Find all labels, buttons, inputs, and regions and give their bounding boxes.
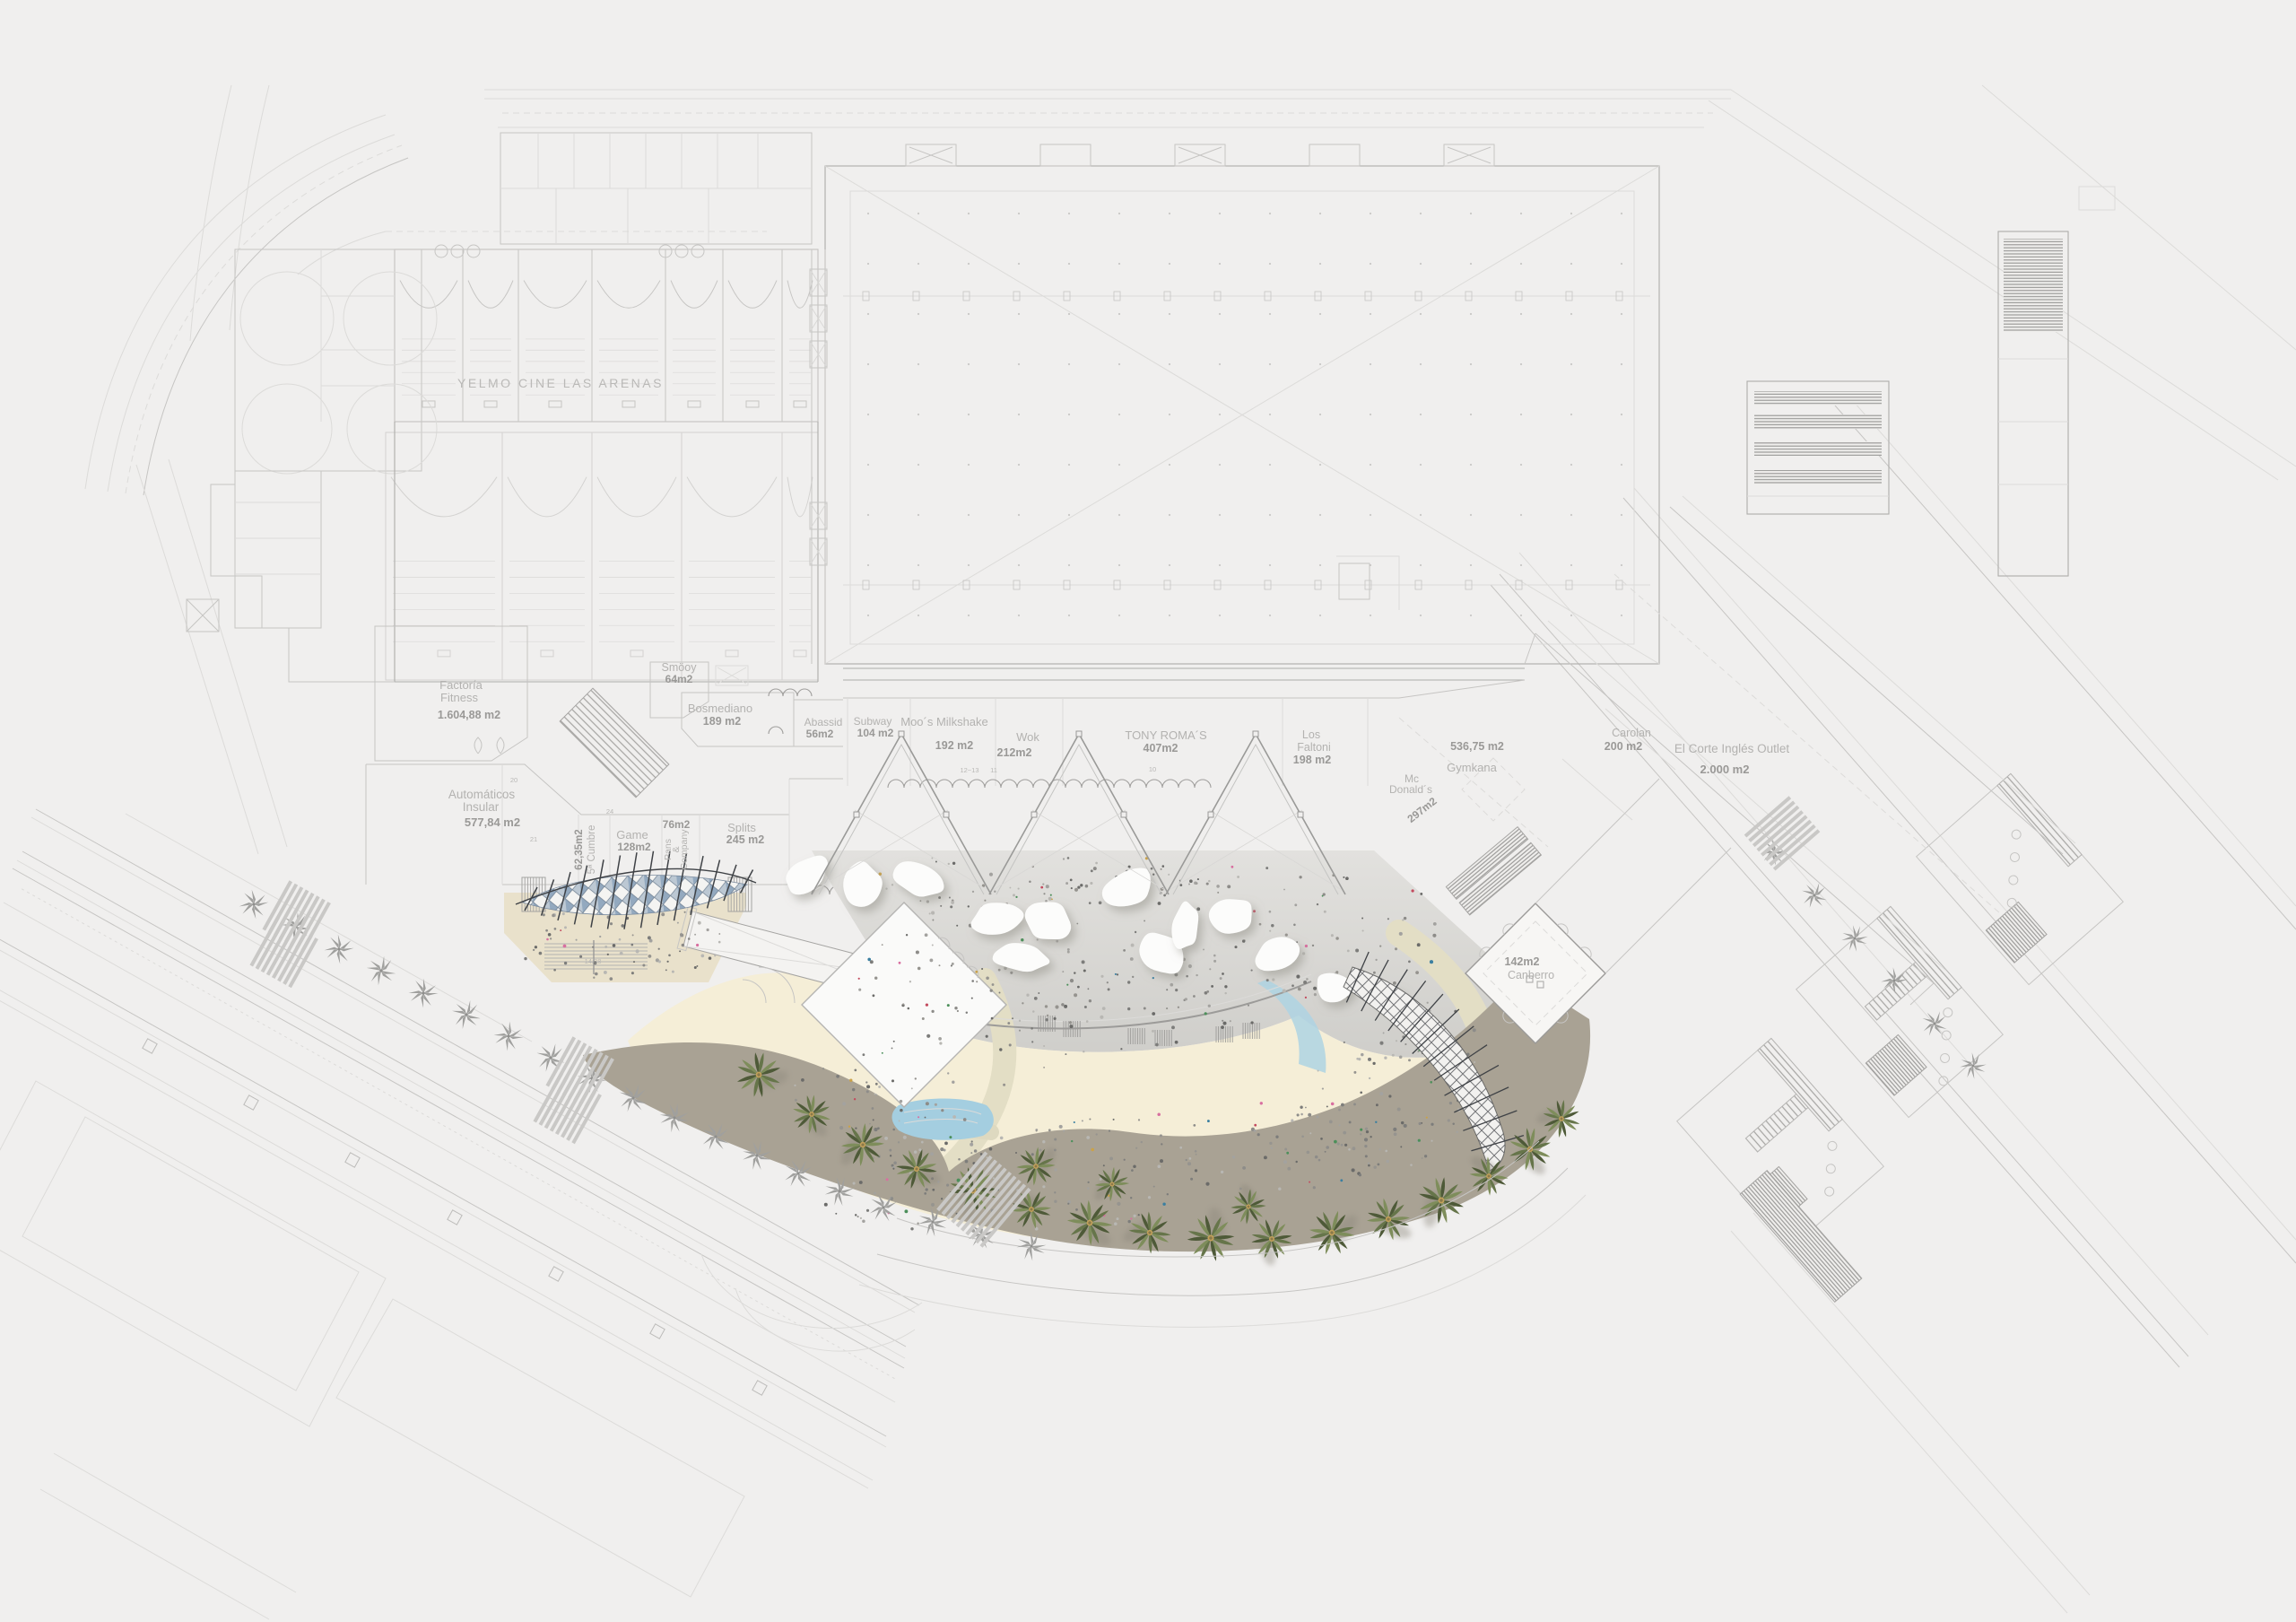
grid-mark: 14/38 xyxy=(585,957,602,965)
plan-label-game-1: Game xyxy=(616,828,648,842)
plan-label-splits-1: Splits xyxy=(727,821,756,834)
grid-mark: 21 xyxy=(530,835,537,843)
plan-label-factoria-1: Factoría xyxy=(439,678,483,692)
plan-label-splits-2: 245 m2 xyxy=(726,833,764,846)
plan-label-mcd-2: Donald´s xyxy=(1389,783,1432,796)
plan-label-bosmediano-1: Bosmediano xyxy=(688,702,752,715)
plan-label-factoria-2: Fitness xyxy=(440,691,478,704)
plan-label-abassid-1: Abassid xyxy=(804,716,843,728)
plan-label-smooy-2: 64m2 xyxy=(665,673,693,685)
plan-label-subway-2: 104 m2 xyxy=(857,727,894,739)
plan-label-eci-1: El Corte Inglés Outlet xyxy=(1674,742,1790,755)
plan-label-moos-2: 192 m2 xyxy=(935,739,973,752)
plan-label-tony-1: TONY ROMA´S xyxy=(1125,728,1207,742)
plan-label-subway-1: Subway xyxy=(854,715,892,728)
plan-label-moos-1: Moo´s Milkshake xyxy=(900,715,988,728)
site-plan-page: YELMO CINE LAS ARENASFactoríaFitness1.60… xyxy=(0,0,2296,1622)
plan-label-cumbre-1: 62,35m2 xyxy=(574,829,585,869)
plan-label-yelmo-cine: YELMO CINE LAS ARENAS xyxy=(457,376,664,390)
plan-label-pans-1: 76m2 xyxy=(663,818,691,831)
paper-background xyxy=(0,0,2296,1622)
grid-mark: 11 xyxy=(990,766,997,774)
plan-label-smooy-1: Smöoy xyxy=(662,661,698,674)
site-plan-canvas: YELMO CINE LAS ARENASFactoríaFitness1.60… xyxy=(0,0,2296,1622)
plan-label-cumbre-2: 5ª Cumbre xyxy=(587,825,597,875)
plan-label-bosmediano-2: 189 m2 xyxy=(703,715,741,728)
plan-label-carolan-1: Carolan xyxy=(1612,727,1651,739)
plan-label-autoinsular-2: Insular xyxy=(463,800,500,814)
plan-label-wok-1: Wok xyxy=(1016,730,1039,744)
grid-mark: 12~13 xyxy=(960,766,978,774)
plan-label-faltoni-2: Faltoni xyxy=(1297,741,1331,754)
plan-label-autoinsular-3: 577,84 m2 xyxy=(465,815,520,829)
plan-label-autoinsular-1: Automáticos xyxy=(448,788,516,801)
plan-label-canberro-1: 142m2 xyxy=(1505,955,1540,968)
plan-label-tony-2: 407m2 xyxy=(1144,742,1178,754)
plan-label-abassid-2: 56m2 xyxy=(806,728,834,740)
plan-label-faltoni-1: Los xyxy=(1302,728,1320,741)
grid-mark: 10 xyxy=(1149,765,1156,773)
plan-label-faltoni-3: 198 m2 xyxy=(1293,754,1331,766)
grid-mark: 20 xyxy=(510,776,517,784)
plan-label-pans-4: Company xyxy=(679,829,690,870)
plan-label-canberro-2: Canberro xyxy=(1508,969,1554,981)
plan-label-factoria-3: 1.604,88 m2 xyxy=(438,709,500,721)
grid-mark: 24 xyxy=(606,807,613,815)
plan-label-wok-2: 212m2 xyxy=(997,746,1032,759)
plan-label-gymkana-2: Gymkana xyxy=(1447,761,1497,774)
plan-label-eci-2: 2.000 m2 xyxy=(1700,763,1750,776)
plan-label-gymkana-1: 536,75 m2 xyxy=(1450,740,1504,753)
plan-label-game-2: 128m2 xyxy=(617,841,651,853)
plan-label-carolan-2: 200 m2 xyxy=(1605,740,1642,753)
